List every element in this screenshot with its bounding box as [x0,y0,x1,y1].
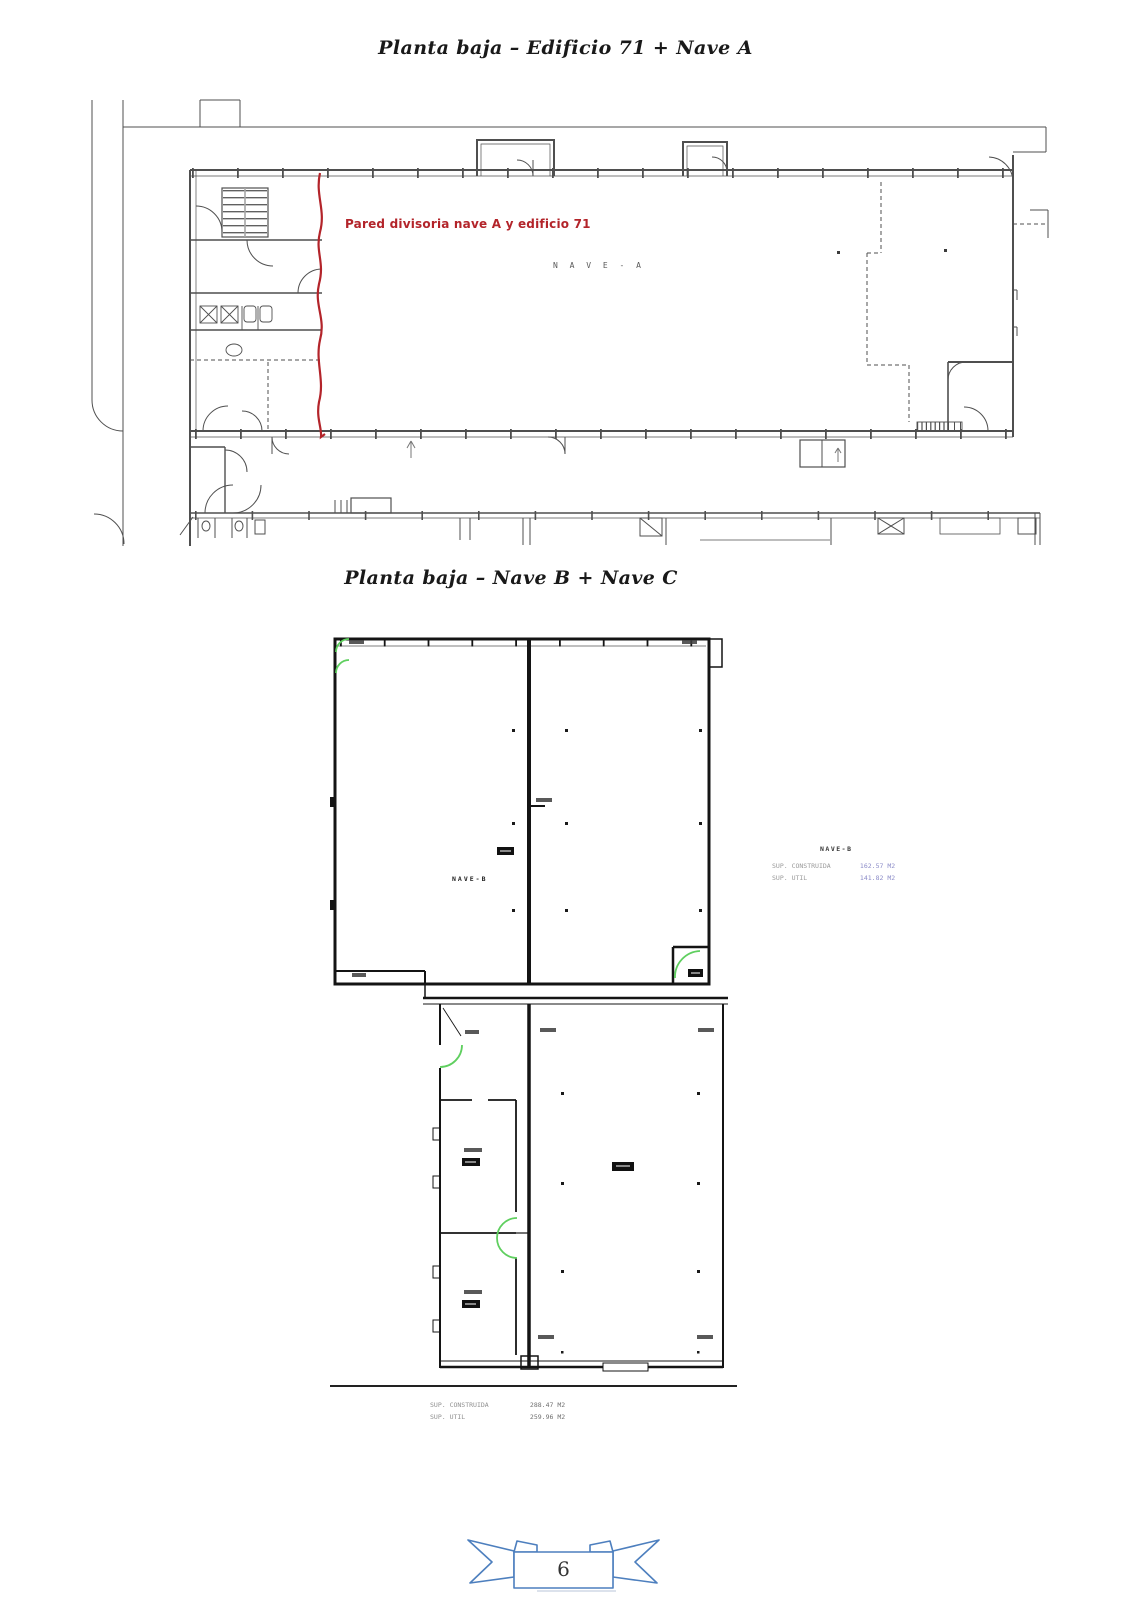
nave-b-info-block: NAVE-B SUP. CONSTRUIDA 162.57 M2 SUP. UT… [772,843,895,884]
ribbon-left-tail [468,1540,514,1583]
ribbon-left-tab [514,1541,537,1552]
toilet-fixtures [200,306,272,356]
door-arc [225,450,247,472]
nave-c-info-block: SUP. CONSTRUIDA 288.47 M2 SUP. UTIL 259.… [430,1399,565,1423]
stair-hatch [222,188,268,237]
lower-strip-building [180,447,1040,545]
info-label: SUP. UTIL [430,1411,526,1423]
door-arc [242,411,262,431]
door-arc [196,206,222,232]
dashed-boundary [867,182,909,422]
door-arc [548,437,565,454]
door-arc [233,485,261,513]
info-row: SUP. CONSTRUIDA 162.57 M2 [772,860,895,872]
door-arc [203,406,228,431]
document-page: { "document": { "section1_title": "Plant… [0,0,1131,1600]
door-arc [948,362,966,380]
plan2-drawing [330,639,737,1386]
door-arc [272,437,289,454]
plan1-drawing [92,100,1048,546]
door-arc [205,485,233,513]
green-door-arc [440,1045,462,1067]
info-value: 288.47 M2 [530,1401,565,1409]
page-number: 6 [514,1557,613,1581]
info-label: SUP. CONSTRUIDA [430,1399,526,1411]
tiny-label-smudges [464,1028,714,1339]
info-row: SUP. CONSTRUIDA 288.47 M2 [430,1399,565,1411]
info-value: 259.96 M2 [530,1413,565,1421]
info-label: SUP. UTIL [772,872,856,884]
green-door-arc [497,1218,517,1258]
corner-room [673,947,709,984]
floor-plans-canvas [0,0,1131,1600]
north-arrow [407,441,415,458]
section2-title: Planta baja – Nave B + Nave C [0,567,1022,589]
info-row: SUP. UTIL 259.96 M2 [430,1411,565,1423]
red-divider-line [318,173,325,437]
door-arc [92,400,123,431]
info-title: NAVE-B [820,843,895,855]
door-arc [247,240,273,266]
nave-a-label: N A V E - A [553,261,644,270]
red-wall-annotation: Pared divisoria nave A y edificio 71 [345,217,591,231]
info-row: SUP. UTIL 141.82 M2 [772,872,895,884]
info-value: 162.57 M2 [860,862,895,870]
section1-title: Planta baja – Edificio 71 + Nave A [0,37,1131,59]
ribbon-right-tail [613,1540,659,1583]
stair-hatch [917,422,962,431]
door-arc [964,407,988,431]
column-dots [512,729,702,912]
info-value: 141.82 M2 [860,874,895,882]
ribbon-right-tab [590,1541,613,1552]
door-arc [94,514,124,544]
green-door-arc [336,639,349,673]
pilasters [433,1128,440,1332]
column-dots [561,1092,700,1354]
tiny-label-smudges [349,640,697,977]
info-label: SUP. CONSTRUIDA [772,860,856,872]
nave-b-plan-label: NAVE-B [452,875,487,883]
door-arc [517,160,533,176]
